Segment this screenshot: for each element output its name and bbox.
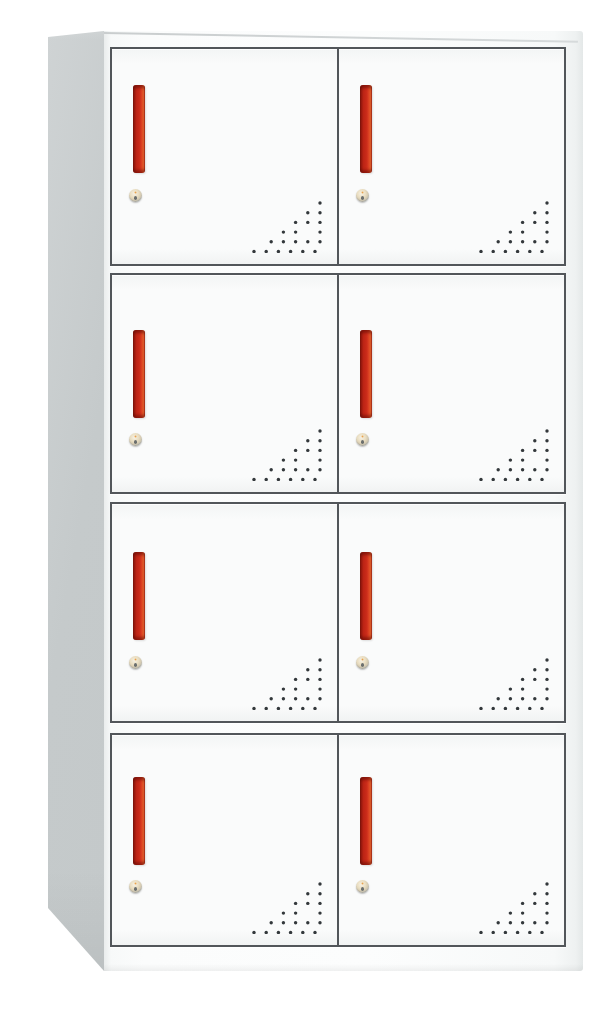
door-handle [133, 330, 145, 418]
door-lock [356, 433, 369, 446]
vent-holes-icon [479, 654, 555, 710]
door-lock [129, 189, 142, 202]
vent-holes-icon [479, 425, 555, 481]
locker-door [112, 49, 337, 264]
locker-door [112, 275, 337, 492]
locker-door [337, 504, 564, 721]
door-row-2 [110, 273, 566, 494]
door-lock [129, 656, 142, 669]
door-handle [133, 777, 145, 865]
locker-door [112, 735, 337, 945]
locker-door [112, 504, 337, 721]
vent-holes-icon [252, 878, 328, 934]
door-lock [356, 656, 369, 669]
door-lock [129, 880, 142, 893]
vent-holes-icon [252, 425, 328, 481]
locker-cabinet-photo [0, 0, 605, 1009]
door-handle [360, 552, 372, 640]
door-handle [133, 552, 145, 640]
vent-holes-icon [479, 878, 555, 934]
vent-holes-icon [252, 654, 328, 710]
door-row-1 [110, 47, 566, 266]
door-handle [133, 85, 145, 173]
cabinet-top-edge [104, 32, 578, 42]
door-lock [129, 433, 142, 446]
door-handle [360, 330, 372, 418]
vent-holes-icon [252, 197, 328, 253]
door-row-4 [110, 733, 566, 947]
locker-door [337, 735, 564, 945]
locker-door [337, 275, 564, 492]
cabinet-front-face [104, 31, 583, 971]
door-handle [360, 777, 372, 865]
door-handle [360, 85, 372, 173]
door-lock [356, 880, 369, 893]
vent-holes-icon [479, 197, 555, 253]
door-row-3 [110, 502, 566, 723]
locker-door [337, 49, 564, 264]
door-lock [356, 189, 369, 202]
